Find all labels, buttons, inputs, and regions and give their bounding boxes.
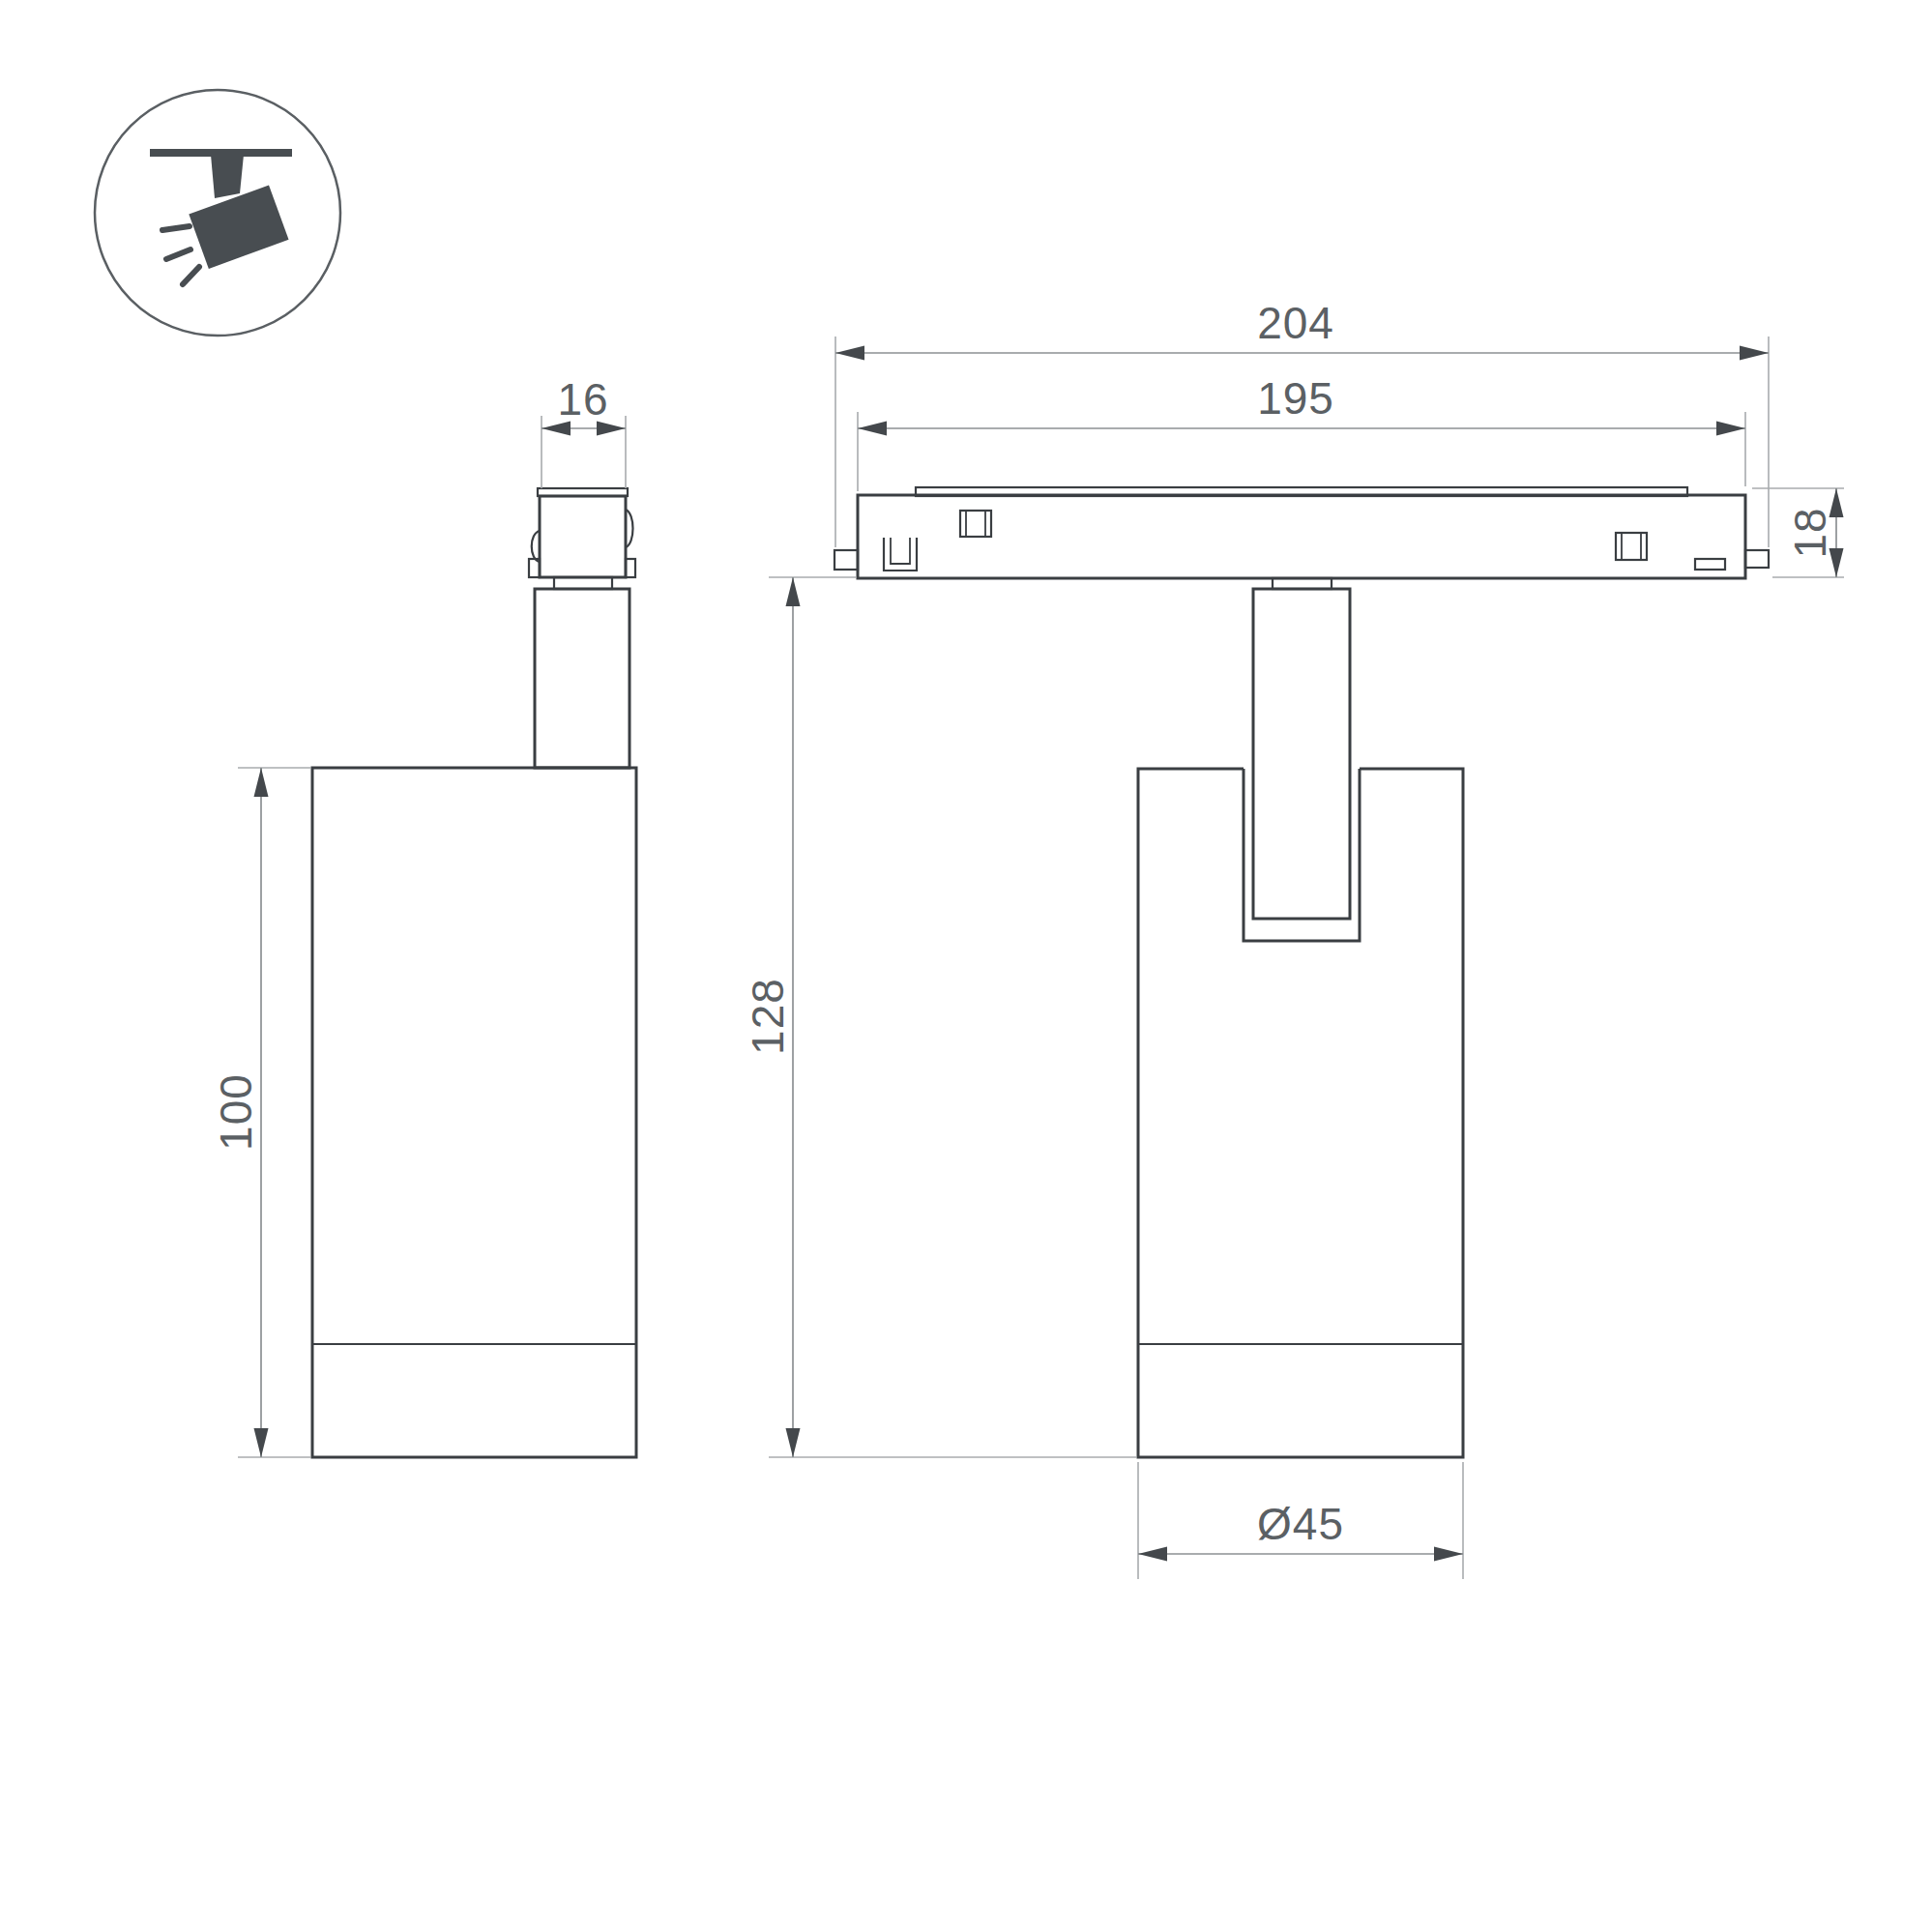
dim-body-diameter: Ø45: [1138, 1462, 1463, 1579]
dim-body-height: 100: [211, 768, 310, 1457]
arrow-right: [1740, 346, 1769, 361]
arrow-right: [1434, 1547, 1463, 1562]
arrow-left: [858, 422, 887, 436]
dim-label-connector-width: 16: [557, 374, 608, 424]
dim-label-track-body-length: 195: [1257, 373, 1334, 424]
front-collar: [1273, 578, 1332, 589]
track-right-ear: [1745, 550, 1769, 568]
dim-connector-width: 16: [542, 374, 626, 488]
front-body: [1138, 769, 1463, 1457]
front-stem: [1253, 589, 1350, 919]
front-view: 204 195 18 128: [743, 298, 1844, 1579]
arrow-down: [786, 1428, 801, 1457]
icon-mount-stem: [211, 155, 244, 198]
ceiling-track-spotlight-icon: [95, 90, 340, 336]
front-body-notch: [1244, 769, 1360, 941]
track-left-ear: [834, 550, 858, 570]
arrow-left: [835, 346, 864, 361]
dim-label-body-diameter: Ø45: [1257, 1499, 1344, 1549]
track-u-clip-inner: [891, 538, 910, 564]
side-connector-block: [540, 496, 626, 577]
track-slot-right: [1616, 533, 1647, 560]
icon-light-ray: [162, 226, 190, 230]
side-view: 16 100: [211, 374, 636, 1457]
dim-label-track-height: 18: [1785, 507, 1835, 558]
dim-label-overall-length: 204: [1257, 298, 1334, 348]
dim-label-overall-height: 128: [743, 978, 793, 1055]
dim-track-height: 18: [1752, 488, 1844, 577]
dim-track-body-length: 195: [858, 373, 1745, 491]
arrow-up: [786, 577, 801, 606]
dim-overall-height: 128: [743, 577, 1136, 1457]
arrow-down: [254, 1428, 269, 1457]
side-stem: [535, 589, 629, 768]
dimension-drawing: 16 100: [0, 0, 1932, 1932]
track-slot-small: [1695, 559, 1725, 570]
arrow-right: [1716, 422, 1745, 436]
track-u-clip-outer: [884, 538, 917, 571]
side-body: [312, 768, 636, 1457]
dim-label-body-height: 100: [211, 1073, 261, 1151]
side-neck: [554, 577, 612, 589]
track-slot-left: [960, 511, 991, 537]
arrow-up: [254, 768, 269, 797]
arrow-left: [1138, 1547, 1167, 1562]
